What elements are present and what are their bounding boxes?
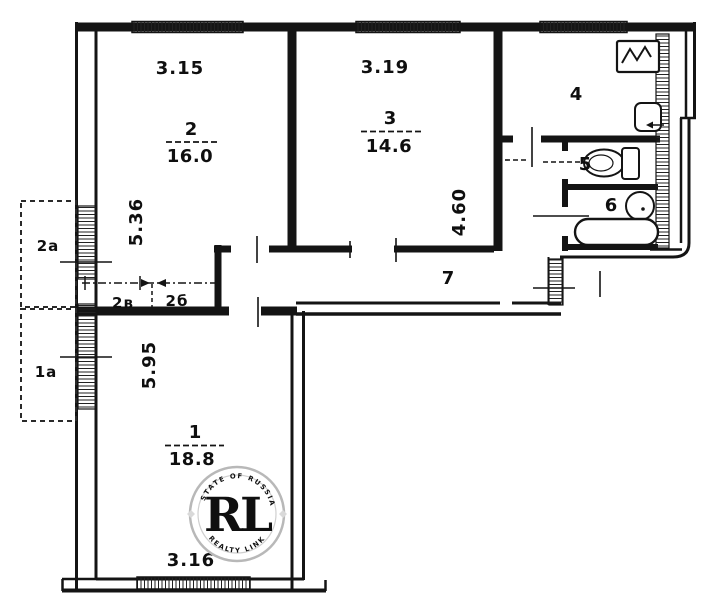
window-room1-bottom	[137, 577, 250, 589]
watermark-monogram: RL	[204, 488, 273, 543]
kitchen-sink-icon	[635, 103, 664, 131]
balcony-2a-label: 2а	[37, 237, 60, 255]
balcony-1a-label: 1а	[35, 363, 58, 381]
floor-plan-svg: 3.15 3.19 5.36 4.60 5.95 3.16 2 16.0 3 1…	[0, 0, 703, 600]
window-room2-top	[132, 22, 243, 33]
window-room2-balcony	[78, 206, 96, 279]
entrance-door	[549, 259, 563, 305]
room-4-number: 4	[570, 84, 583, 105]
dim-room3-depth: 4.60	[449, 188, 470, 236]
room-1-number: 1	[189, 422, 202, 443]
dim-room2-depth: 5.36	[126, 198, 147, 246]
dim-room2-width: 3.15	[156, 58, 204, 79]
dim-room1-width: 3.16	[167, 550, 215, 571]
room-3-number: 3	[384, 108, 397, 129]
room-7-number: 7	[442, 268, 455, 289]
basin-icon	[626, 192, 654, 220]
paper-background	[0, 0, 703, 600]
room-6-number: 6	[605, 195, 618, 216]
window-room3-top	[356, 22, 460, 33]
closet-2v-label: 2в	[112, 294, 134, 312]
bathtub-icon	[575, 219, 658, 245]
stove-icon	[617, 41, 659, 72]
dim-room3-width: 3.19	[361, 57, 409, 78]
dim-room1-depth: 5.95	[139, 341, 160, 389]
room-3-area: 14.6	[366, 136, 412, 157]
room-5-number: 5	[579, 154, 592, 175]
room-1-area: 18.8	[169, 449, 215, 470]
window-kitchen-top	[540, 22, 627, 33]
toilet-icon	[584, 148, 639, 179]
room-2-area: 16.0	[167, 146, 213, 167]
closet-2b-label: 2б	[166, 292, 189, 310]
room-2-number: 2	[185, 119, 198, 140]
watermark: ESTATE OF RUSSIA REALTY LINK RL	[187, 467, 287, 561]
